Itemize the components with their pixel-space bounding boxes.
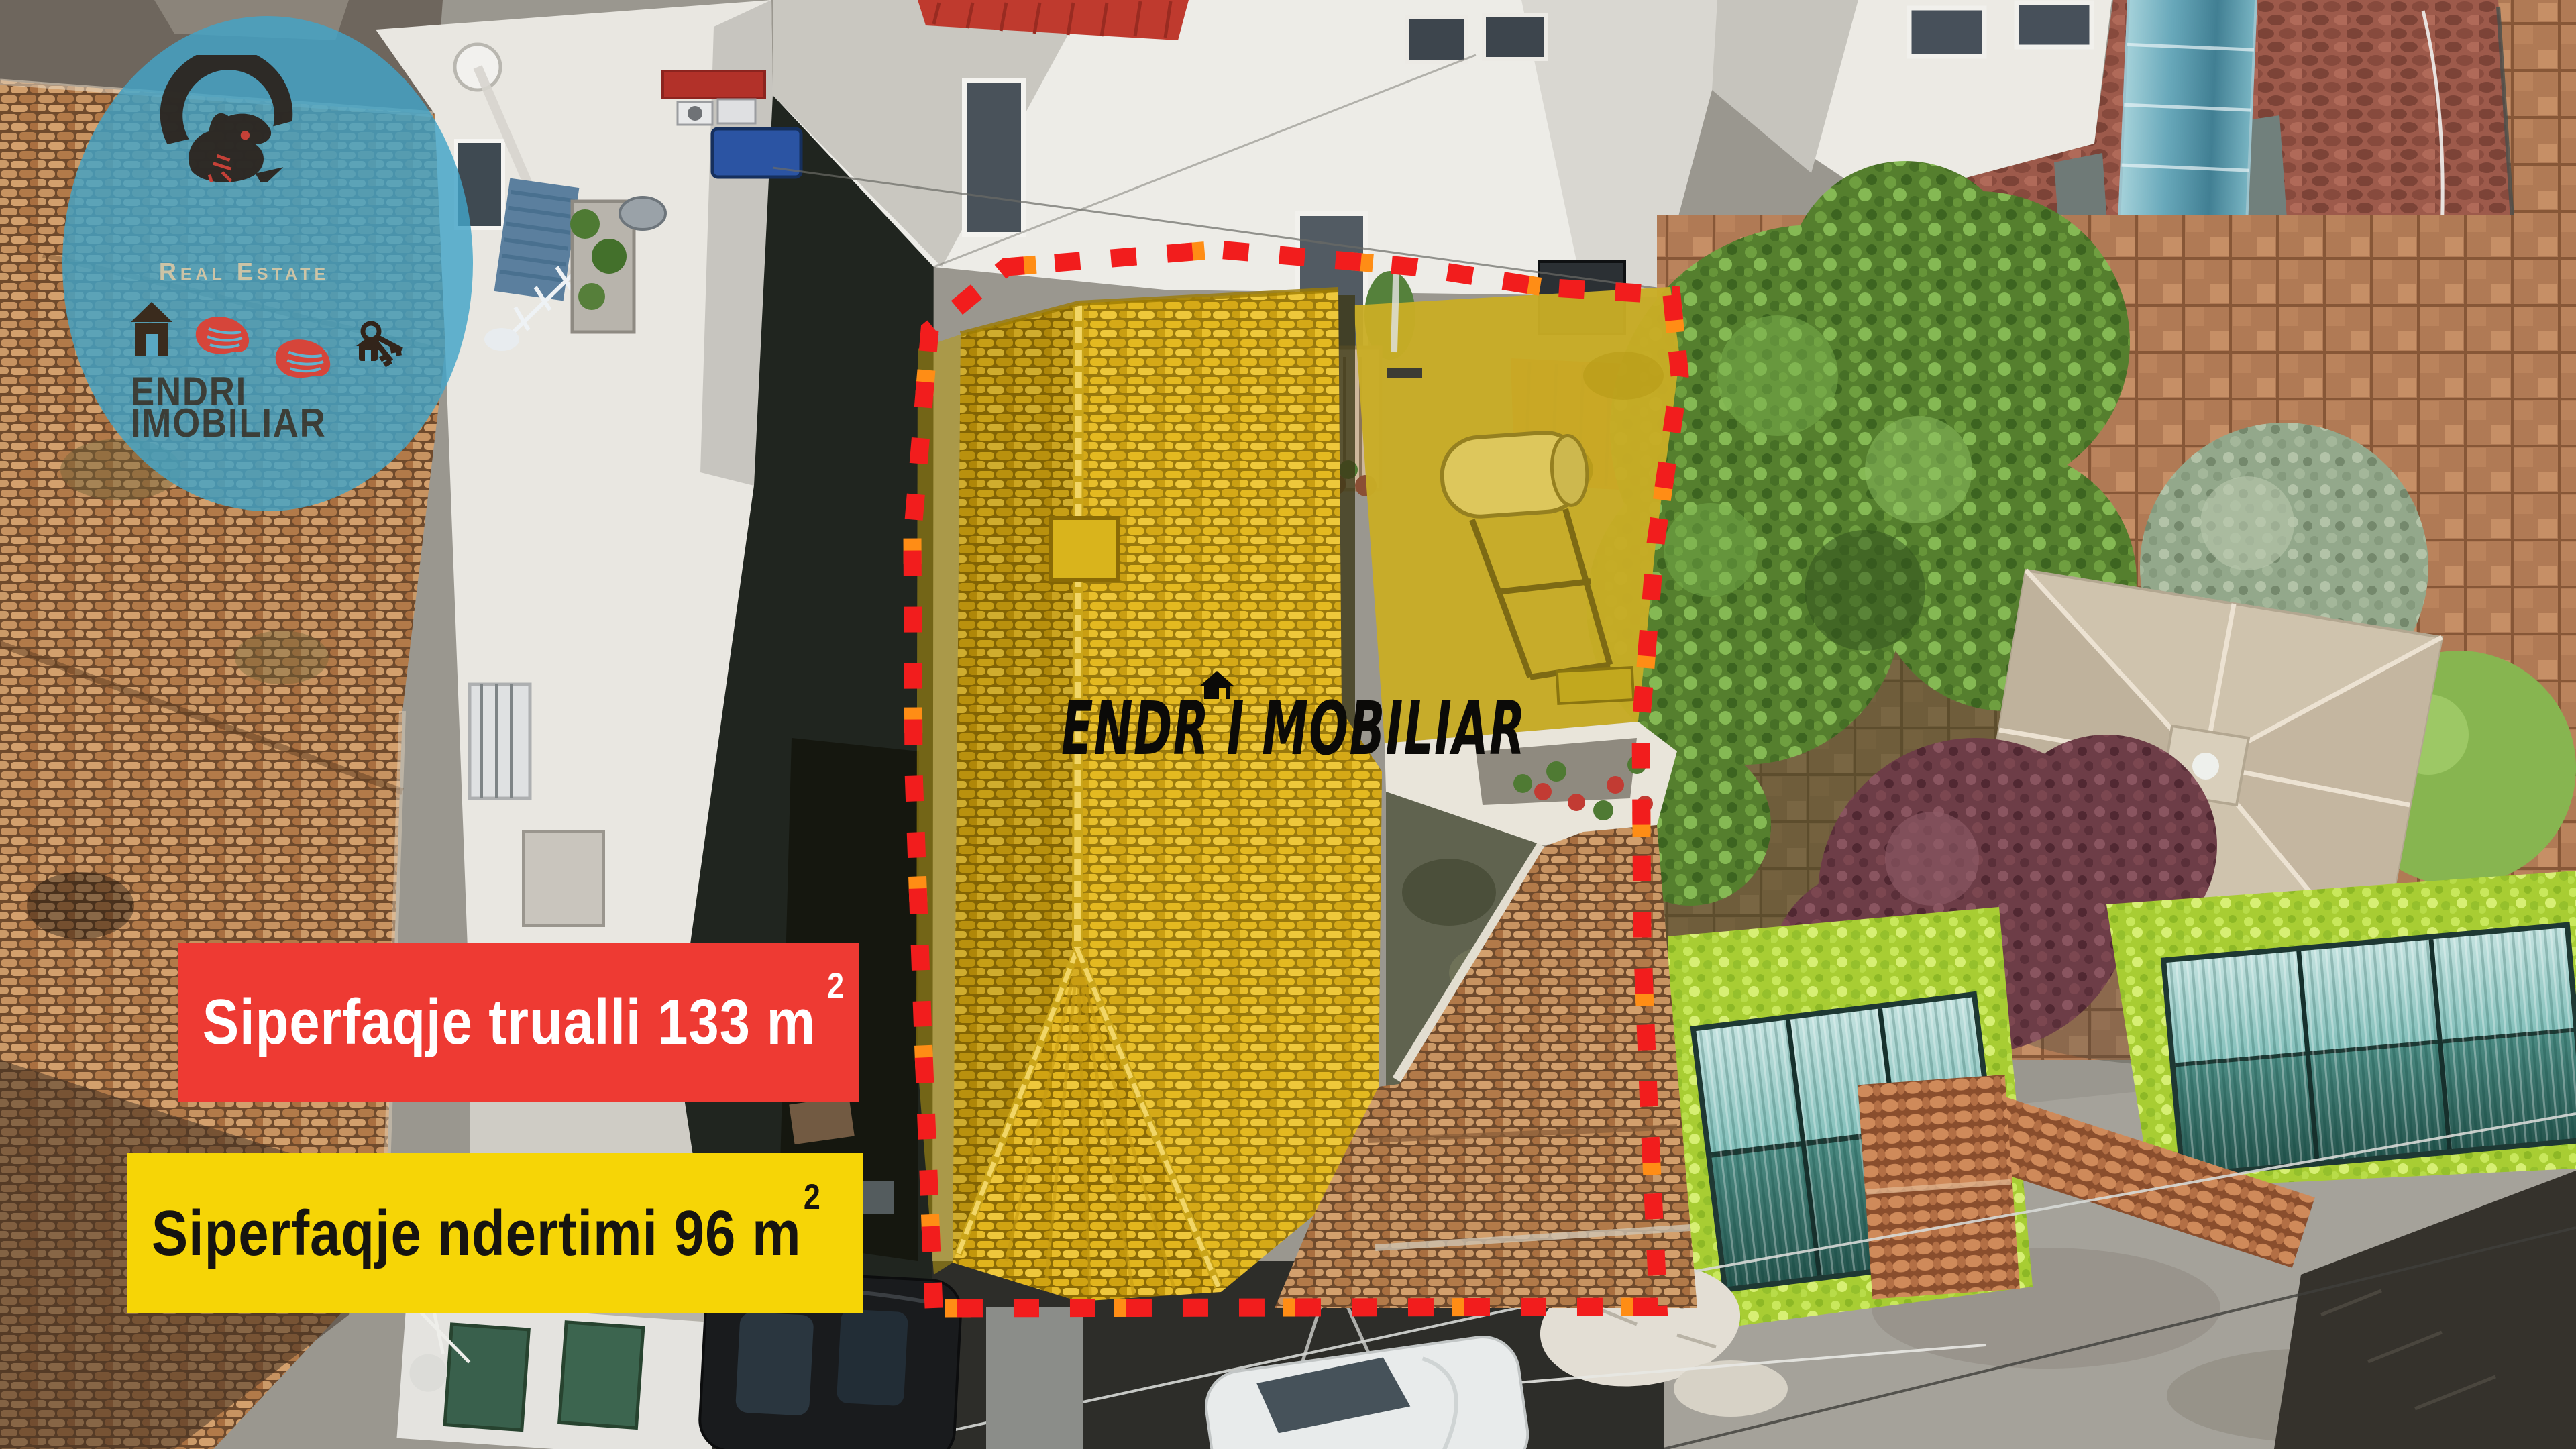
hand-icon [193,314,252,361]
red-container [663,71,765,98]
land-area-value: 133 [657,986,751,1058]
building-area-value: 96 [674,1197,736,1269]
highlighted-parcel [912,250,1697,1308]
watermark-text: ENDR I MOBILIAR [1061,686,1526,771]
water-tank [620,197,665,229]
building-area-banner: Siperfaqje ndertimi96m2 [127,1153,863,1313]
land-area-superscript: 2 [827,966,845,1006]
building-area-text: Siperfaqje ndertimi96m2 [127,1197,821,1271]
house-icon [131,302,172,357]
small-tile-roof [1858,1075,2020,1299]
building-area-unit: m [752,1197,801,1269]
keys-icon [354,321,413,370]
aerial-property-photo: Real Estate ENDRI IMOBILIAR ENDR I [0,0,2576,1449]
building-area-superscript: 2 [804,1177,821,1217]
chimney [1051,518,1118,580]
building-area-label: Siperfaqje ndertimi [152,1197,658,1269]
land-area-unit: m [767,986,816,1058]
shed [986,1307,1083,1449]
land-area-banner: Siperfaqje trualli133m2 [178,943,859,1102]
logo-tagline: Real Estate [127,258,362,286]
yellow-roof-highlight [953,290,1382,1301]
ac-unit [718,99,755,123]
greenhouse-panels-right [2161,922,2576,1178]
ibex-logo-icon [144,55,305,182]
logo-name: ENDRI IMOBILIAR [131,376,327,439]
logo-name-line2: IMOBILIAR [131,407,327,439]
land-area-text: Siperfaqje trualli133m2 [178,985,845,1059]
land-area-label: Siperfaqje trualli [203,986,642,1058]
agency-logo-badge: Real Estate ENDRI IMOBILIAR [62,16,473,511]
